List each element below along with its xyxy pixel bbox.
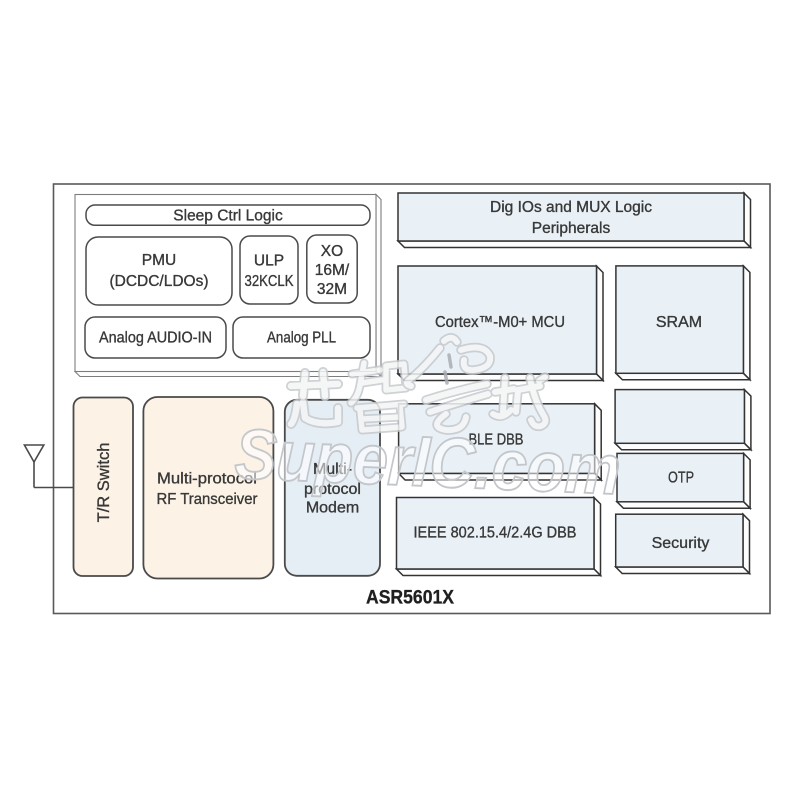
svg-text:32KCLK: 32KCLK	[245, 273, 295, 290]
svg-text:ASR5601X: ASR5601X	[366, 587, 454, 609]
svg-text:Cortex™-M0+ MCU: Cortex™-M0+ MCU	[435, 314, 565, 331]
svg-text:Security: Security	[652, 535, 710, 552]
svg-text:32M: 32M	[317, 281, 347, 298]
svg-text:PMU: PMU	[142, 252, 176, 269]
svg-text:SRAM: SRAM	[656, 314, 702, 331]
svg-text:(DCDC/LDOs): (DCDC/LDOs)	[109, 273, 208, 290]
svg-text:Dig IOs and MUX Logic: Dig IOs and MUX Logic	[490, 199, 652, 216]
svg-text:T/R Switch: T/R Switch	[95, 443, 113, 523]
svg-text:16M/: 16M/	[315, 262, 350, 279]
svg-text:Sleep Ctrl Logic: Sleep Ctrl Logic	[173, 208, 283, 225]
svg-text:Peripherals: Peripherals	[532, 220, 611, 237]
svg-text:IEEE 802.15.4/2.4G DBB: IEEE 802.15.4/2.4G DBB	[414, 525, 577, 542]
svg-text:ULP: ULP	[254, 253, 284, 270]
svg-text:Analog AUDIO-IN: Analog AUDIO-IN	[99, 330, 212, 347]
svg-text:OTP: OTP	[668, 470, 694, 487]
svg-text:Analog PLL: Analog PLL	[267, 330, 336, 347]
svg-text:XO: XO	[321, 243, 343, 260]
svg-text:Modem: Modem	[306, 500, 359, 517]
svg-text:SuperIC.com: SuperIC.com	[233, 415, 622, 510]
